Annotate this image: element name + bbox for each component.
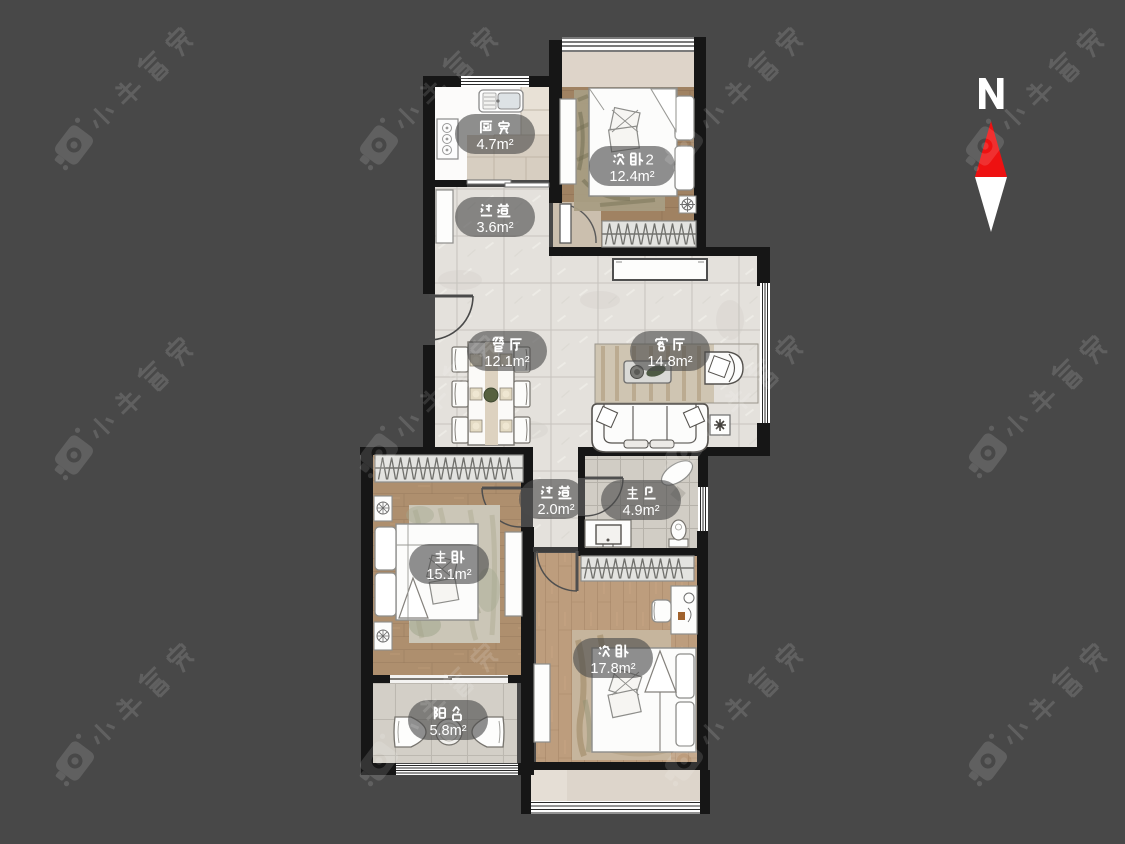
svg-text:12.1m²: 12.1m² — [484, 354, 529, 370]
svg-text:12.4m²: 12.4m² — [609, 169, 654, 185]
svg-text:3.6m²: 3.6m² — [476, 220, 513, 236]
svg-text:2: 2 — [646, 152, 654, 169]
svg-text:15.1m²: 15.1m² — [426, 567, 471, 583]
svg-text:14.8m²: 14.8m² — [647, 354, 692, 370]
svg-text:4.9m²: 4.9m² — [622, 503, 659, 519]
svg-text:5.8m²: 5.8m² — [429, 723, 466, 739]
svg-text:4.7m²: 4.7m² — [476, 137, 513, 153]
svg-text:17.8m²: 17.8m² — [590, 661, 635, 677]
svg-text:2.0m²: 2.0m² — [537, 502, 574, 518]
